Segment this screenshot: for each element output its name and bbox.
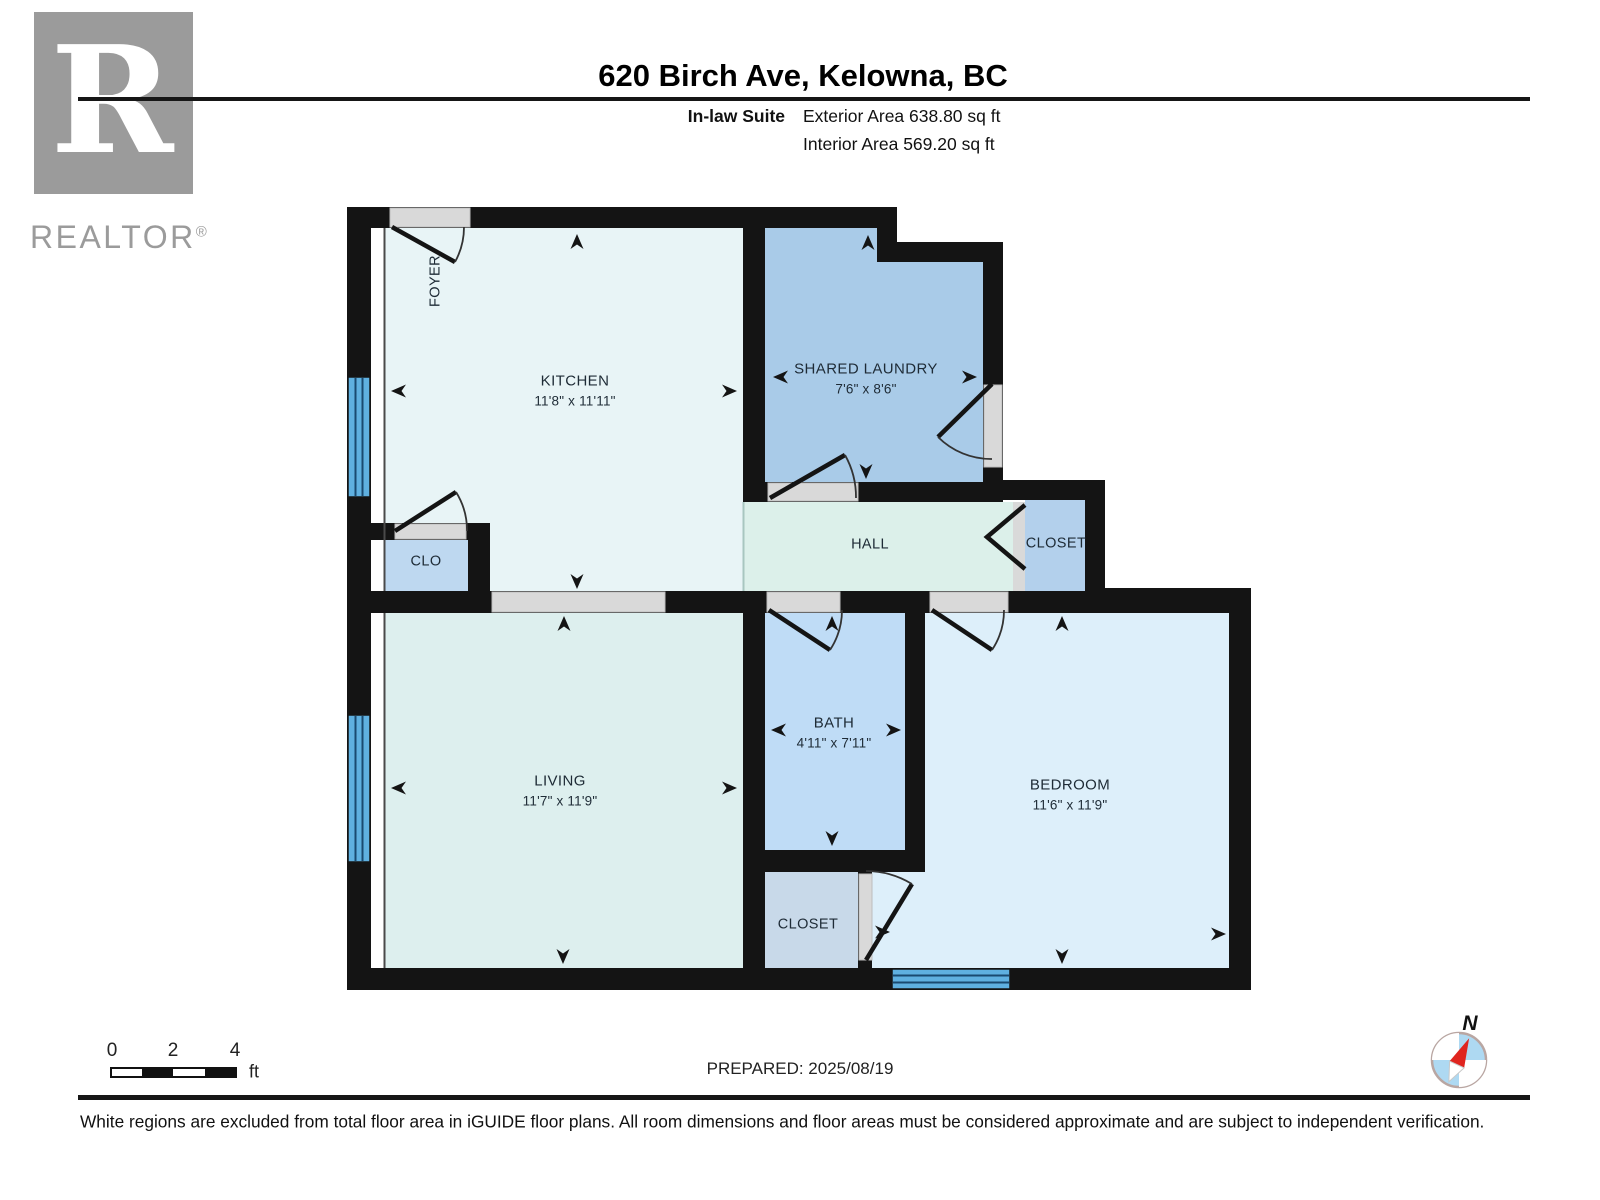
- interior-area-value: Interior Area 569.20 sq ft: [803, 134, 1000, 155]
- label-living: LIVING 11'7" x 11'9": [523, 772, 598, 809]
- foyer-door-opening: [390, 208, 470, 227]
- kitchen-dims: 11'8" x 11'11": [534, 393, 615, 409]
- laundry-dims: 7'6" x 8'6": [794, 381, 938, 397]
- bath-dims: 4'11" x 7'11": [797, 735, 872, 751]
- title-divider: [78, 97, 1530, 101]
- label-foyer: FOYER: [427, 255, 444, 307]
- laundry-side-door-opening: [984, 385, 1002, 467]
- registered-mark: ®: [196, 223, 210, 240]
- page-title: 620 Birch Ave, Kelowna, BC: [598, 58, 1007, 94]
- prepared-date: PREPARED: 2025/08/19: [707, 1059, 894, 1079]
- living-window-icon: [348, 715, 370, 862]
- area-summary: In-law Suite Exterior Area 638.80 sq ft …: [560, 106, 1000, 155]
- bath-name: BATH: [797, 714, 872, 732]
- scale-unit: ft: [249, 1062, 259, 1083]
- realtor-wordmark: REALTOR®: [30, 219, 209, 256]
- bedroom-window-icon: [892, 969, 1010, 989]
- label-clo: CLO: [410, 553, 441, 570]
- room-laundry: [765, 228, 983, 482]
- floor-plan-canvas: [0, 0, 1600, 1200]
- kitchen-window-icon: [348, 377, 370, 497]
- kitchen-name: KITCHEN: [534, 372, 615, 390]
- scale-tick-2: 2: [168, 1040, 179, 1062]
- realtor-wordmark-text: REALTOR: [30, 219, 196, 255]
- living-dims: 11'7" x 11'9": [523, 793, 598, 809]
- compass-north-label: N: [1462, 1012, 1477, 1036]
- bath-door-opening: [767, 592, 840, 612]
- kitchen-living-opening: [492, 592, 665, 612]
- bedroom-name: BEDROOM: [1030, 776, 1110, 794]
- bedroom-dims: 11'6" x 11'9": [1030, 797, 1110, 813]
- disclaimer-text: White regions are excluded from total fl…: [80, 1112, 1484, 1133]
- exterior-area-value: Exterior Area 638.80 sq ft: [803, 106, 1000, 127]
- label-bath: BATH 4'11" x 7'11": [797, 714, 872, 751]
- label-laundry: SHARED LAUNDRY 7'6" x 8'6": [794, 360, 938, 397]
- label-closet-bedroom: CLOSET: [778, 916, 838, 933]
- scale-tick-0: 0: [107, 1040, 118, 1062]
- label-hall: HALL: [851, 536, 889, 553]
- footer-divider: [78, 1095, 1530, 1100]
- label-kitchen: KITCHEN 11'8" x 11'11": [534, 372, 615, 409]
- suite-label: In-law Suite: [560, 106, 785, 127]
- scale-bar: [111, 1068, 236, 1077]
- compass-icon: [1432, 1033, 1486, 1087]
- bedroom-door-opening: [930, 592, 1008, 612]
- scale-tick-4: 4: [230, 1040, 241, 1062]
- laundry-name: SHARED LAUNDRY: [794, 360, 938, 378]
- bedroom-closet-door-opening: [859, 874, 872, 960]
- label-closet-hall: CLOSET: [1026, 535, 1086, 552]
- label-bedroom: BEDROOM 11'6" x 11'9": [1030, 776, 1110, 813]
- living-name: LIVING: [523, 772, 598, 790]
